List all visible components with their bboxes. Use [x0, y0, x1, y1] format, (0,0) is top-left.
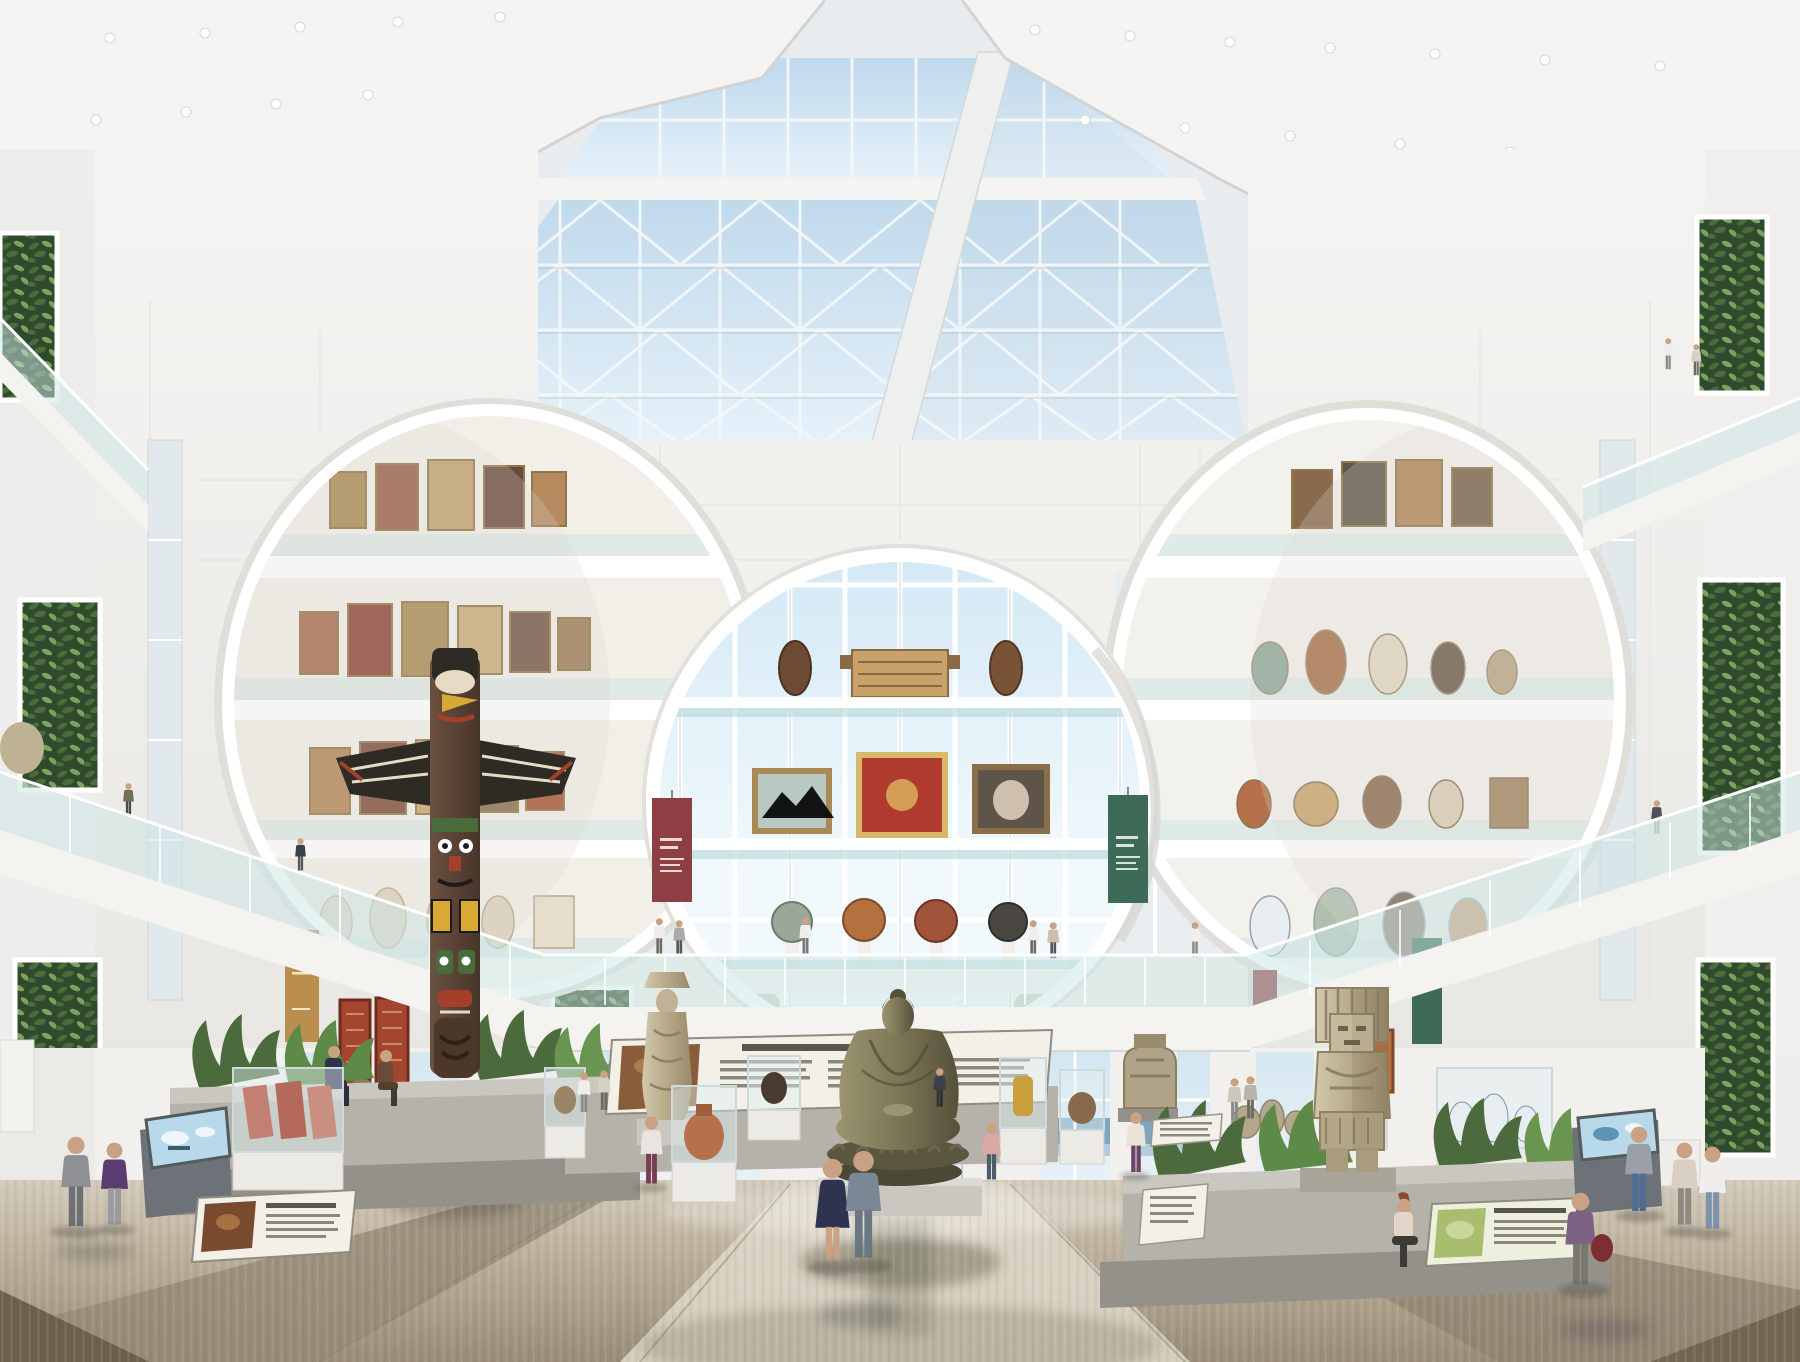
- display-case-gold-figure: [1000, 1058, 1046, 1164]
- atrium-rendering: [0, 0, 1800, 1362]
- display-case-bust: [748, 1056, 800, 1140]
- reading-rail-green: [1426, 1198, 1586, 1280]
- banner-red: [652, 790, 692, 902]
- balcony-sculpture: [0, 722, 44, 774]
- living-wall: [1698, 960, 1773, 1155]
- display-case-manuscripts: [233, 1068, 343, 1190]
- living-wall: [1697, 217, 1767, 393]
- reading-rail-small: [1151, 1114, 1222, 1146]
- edge-display: [0, 1040, 34, 1132]
- scene-canvas: [0, 0, 1800, 1362]
- banner-green: [1108, 787, 1148, 903]
- reading-rail-small: [192, 1190, 356, 1262]
- display-case-urn: [672, 1086, 736, 1202]
- skylight-fascia: [528, 178, 1206, 200]
- display-case-pot: [1060, 1070, 1104, 1164]
- reading-rail-small: [1139, 1184, 1208, 1245]
